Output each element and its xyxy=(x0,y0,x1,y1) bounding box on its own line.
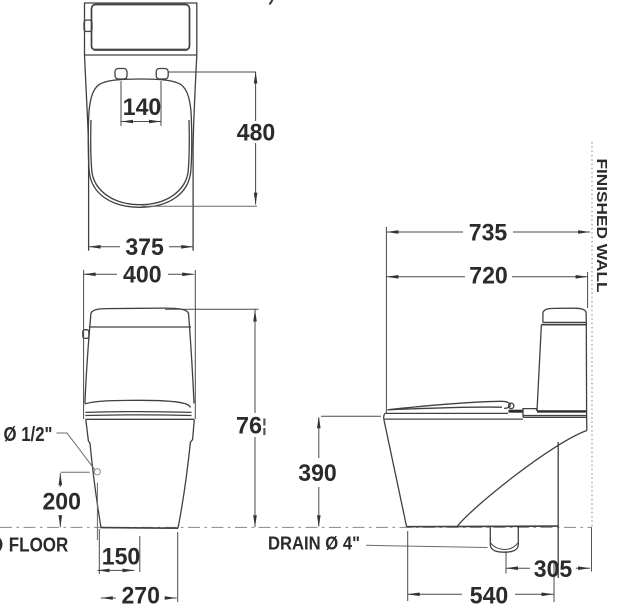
svg-text:150: 150 xyxy=(102,543,141,570)
svg-text:480: 480 xyxy=(237,120,276,147)
svg-text:375: 375 xyxy=(125,234,164,261)
svg-text:390: 390 xyxy=(298,460,337,487)
svg-text:400: 400 xyxy=(123,262,162,289)
svg-text:735: 735 xyxy=(469,219,508,246)
svg-text:FINISHED WALL: FINISHED WALL xyxy=(593,159,610,293)
svg-text:76: 76 xyxy=(236,413,262,440)
svg-text:305: 305 xyxy=(534,556,573,583)
svg-text:540: 540 xyxy=(470,582,509,609)
svg-text:200: 200 xyxy=(42,488,81,515)
svg-text:Ø 1/2": Ø 1/2" xyxy=(4,424,53,446)
svg-text:720: 720 xyxy=(469,263,508,290)
svg-text:270: 270 xyxy=(121,583,160,610)
svg-text:FLOOR: FLOOR xyxy=(9,535,69,557)
svg-text:140: 140 xyxy=(123,94,162,121)
svg-text:DRAIN Ø 4": DRAIN Ø 4" xyxy=(268,533,360,554)
